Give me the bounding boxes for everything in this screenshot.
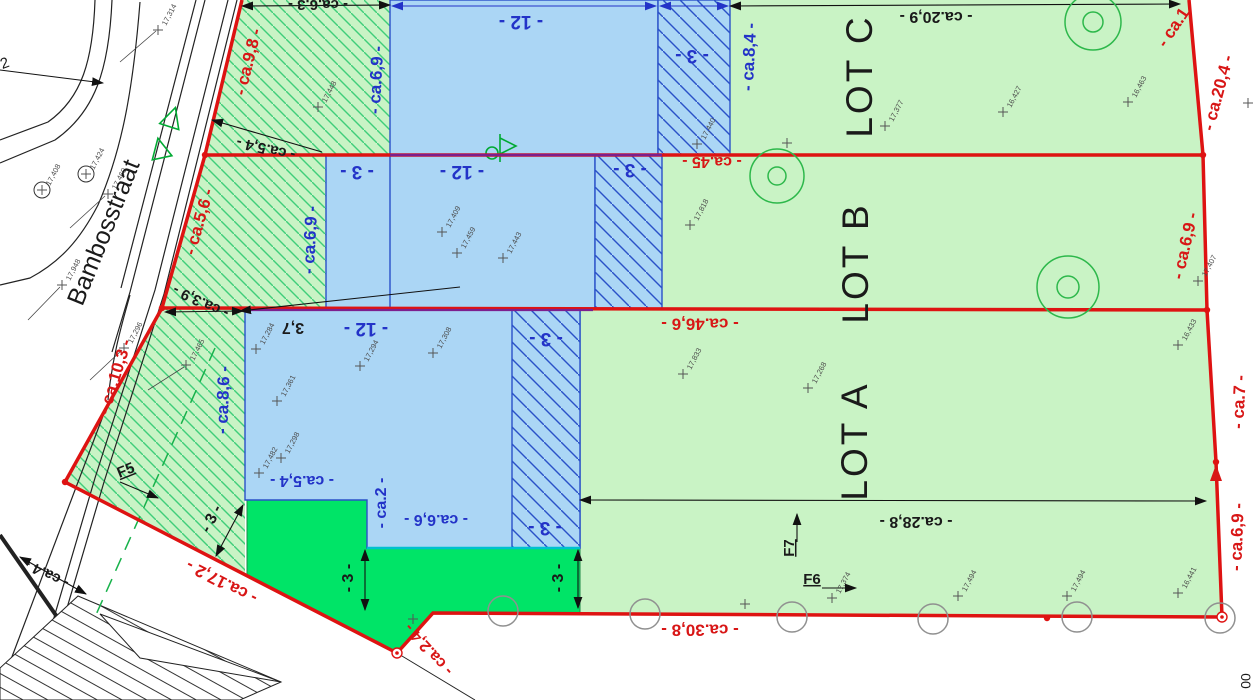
lot-b-area (662, 155, 1207, 310)
dimension-label: - 3 - (675, 45, 709, 66)
boundary-vertex-dot (1204, 307, 1210, 313)
dimension-label: - ca.5,4 - (270, 472, 334, 489)
ref-label-f7: F7 (781, 539, 798, 557)
dimension-label: - ca.8,4 - (738, 22, 761, 91)
dimension-label: - 3 - (529, 328, 563, 349)
elevation-value: 17,424 (88, 146, 107, 170)
dimension-label: - ca.28,8 - (880, 513, 953, 530)
ref-label-00: 00 (1238, 673, 1254, 689)
boundary-vertex-dot (1220, 615, 1224, 619)
elevation-value: 17,314 (160, 2, 179, 26)
ref-label-f6: F6 (803, 571, 821, 588)
dimension-label: - 3 - (340, 161, 374, 182)
lot-label-a: LOT A (834, 381, 875, 500)
dimension-label: - ca.20,4 - (1199, 53, 1237, 133)
dimension-label: - ca.2,4 - (401, 620, 456, 679)
boundary-vertex-dot (1044, 615, 1050, 621)
dimension-label: - ca.45 - (682, 153, 742, 170)
dimension-label: - ca.2 - (373, 478, 390, 529)
building-c-hatch (658, 0, 730, 155)
dimension-label: - 12 - (499, 11, 543, 32)
dimension-label: - ca.6,9 - (299, 205, 322, 274)
ref-label-2: 2 (0, 54, 12, 73)
dimension-label: - ca.6,9 - (365, 45, 388, 114)
plan-drawing: 17,31417,42417,40817,46017,94817,29617,4… (0, 0, 1260, 700)
dimension-label: - ca.4 - (22, 555, 72, 591)
elevation-marker: 17,408 (34, 162, 63, 198)
elevation-marker: 17,314 (153, 2, 179, 35)
lot-label-b: LOT B (835, 202, 876, 323)
dimension-label: - ca.8,6 - (212, 366, 233, 435)
dimension-label: - 3 - (613, 159, 647, 180)
boundary-vertex-dot (1213, 459, 1219, 465)
dimension-label: - ca.6,3 - (288, 0, 348, 13)
boundary-vertex-dot (395, 651, 399, 655)
lot-a-area (580, 310, 1222, 617)
dimension-label: - ca.6,6 - (404, 511, 468, 528)
cadastral-plan: 17,31417,42417,40817,46017,94817,29617,4… (0, 0, 1260, 700)
boundary-vertex-dot (62, 479, 68, 485)
dimension-label: - 3 - (340, 564, 357, 592)
elevation-marker: 17,424 (78, 146, 107, 182)
dimension-label: - ca.6,9 - (1226, 503, 1247, 572)
dimension-label: - 3 - (550, 564, 567, 592)
dimension-label: - 3 - (528, 517, 562, 538)
existing-building (0, 596, 281, 700)
dimension-label: - ca.20,9 - (900, 8, 973, 25)
elevation-marker (1243, 98, 1253, 108)
dimension-label: - ca.7 - (1228, 375, 1250, 430)
boundary-vertex-dot (202, 152, 208, 158)
boundary-vertex-dot (159, 305, 165, 311)
dimension-label: 3,7 (282, 319, 304, 336)
boundary-vertex-dot (1200, 152, 1206, 158)
sign-triangle-icon (148, 136, 172, 160)
dimension-label: - 12 - (440, 161, 484, 182)
elevation-value: 17,408 (44, 162, 63, 186)
dimension-label: - ca.30,8 - (661, 621, 739, 640)
dimension-label: - 12 - (344, 318, 388, 339)
lot-label-c: LOT C (839, 14, 880, 137)
street-name: Bambosstraat (62, 156, 146, 310)
dimension-label: - ca.46,6 - (661, 315, 739, 334)
